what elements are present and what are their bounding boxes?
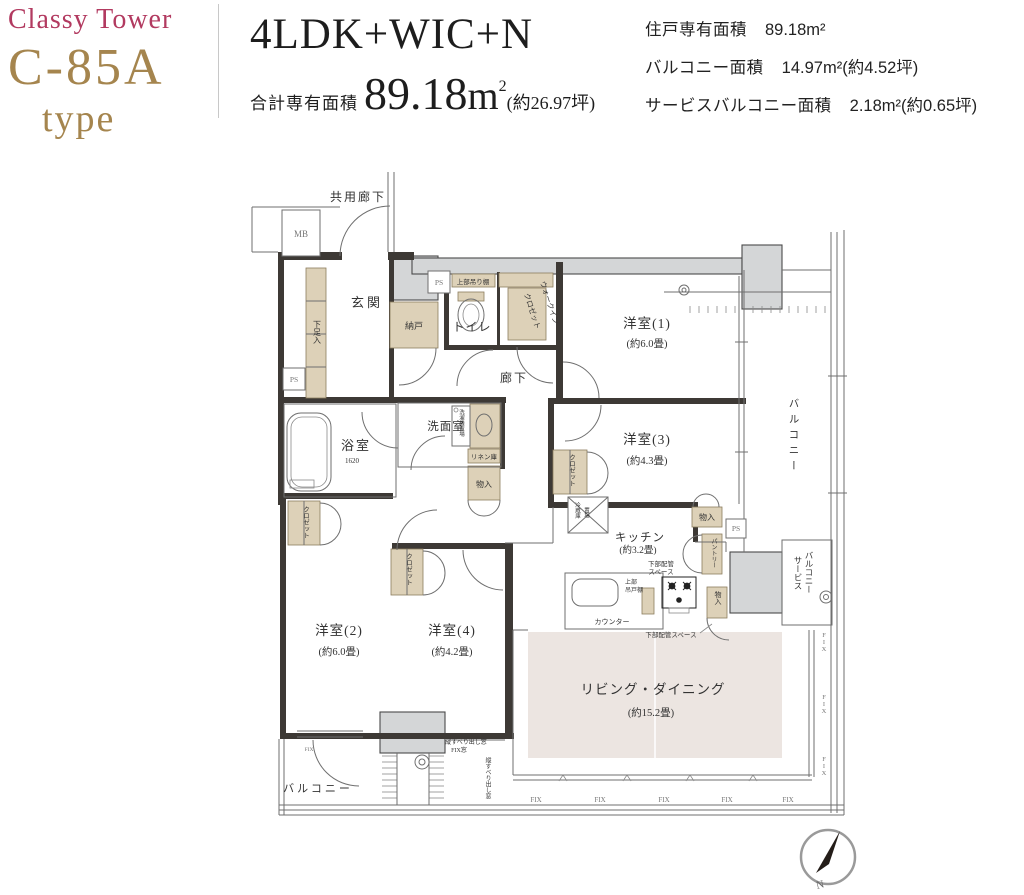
service-balcony-line2: バルコニー <box>804 551 814 594</box>
stove <box>662 577 696 608</box>
hanging-cabinet-line1: 上部 <box>625 578 637 586</box>
fix-label: FIX <box>658 796 669 804</box>
window-note-line1: 縦すべり出し窓 <box>445 738 487 746</box>
pipe-space-label-line1: 下部配管 <box>648 559 675 568</box>
pipe-space-label-line2: スペース <box>648 568 673 576</box>
service-balcony-line1: サービス <box>793 556 803 590</box>
toilet-label: トイレ <box>452 320 491 334</box>
room1-label: 洋室(1) <box>623 315 671 331</box>
entrance-label: 玄関 <box>351 295 383 310</box>
room4-label: 洋室(4) <box>428 622 476 638</box>
fridge-label-line1: 冷蔵庫 <box>574 501 581 520</box>
room2-label: 洋室(2) <box>315 622 363 638</box>
storage-label: 物入 <box>699 512 715 522</box>
bathtub <box>287 413 331 491</box>
hallway-label: 廊下 <box>500 370 528 385</box>
living-dining-size: (約15.2畳) <box>628 706 675 719</box>
room3-label: 洋室(3) <box>623 431 671 447</box>
storeroom-label: 納戸 <box>405 320 423 331</box>
window-note-line2: FIX窓 <box>451 746 467 754</box>
room2-size: (約6.0畳) <box>318 645 360 658</box>
ps-label: PS <box>435 278 443 287</box>
pipe-space-label: 下部配管スペース <box>645 630 696 639</box>
floorplan-drawing: 共用廊下 MB 玄関 下足入 PS PS PS 納戸 トイレ 上部吊り棚 ウォー… <box>0 0 1024 895</box>
storage-label: 物入 <box>714 590 722 605</box>
mb-label: MB <box>294 229 308 239</box>
fix-label: FIX <box>821 632 828 653</box>
compass: N <box>801 830 855 892</box>
fix-label: FIX <box>782 796 793 804</box>
balcony-south-label: バルコニー <box>283 782 353 795</box>
compass-north-label: N <box>815 878 826 892</box>
compass-needle-icon <box>816 831 840 873</box>
ps-label: PS <box>290 375 298 384</box>
washer-label: 洗濯機置場 <box>458 408 465 438</box>
kitchen-size: (約3.2畳) <box>619 544 656 556</box>
fix-label: FIX <box>530 796 541 804</box>
kitchen-sink <box>572 579 618 606</box>
storage-label: 物入 <box>476 479 492 489</box>
living-dining-label: リビング・ダイニング <box>581 682 726 697</box>
fix-label: FIX <box>721 796 732 804</box>
linen-label: リネン庫 <box>471 452 498 461</box>
counter-label: カウンター <box>595 617 630 626</box>
fix-label: FIX <box>821 694 828 715</box>
shoe-box-label: 下足入 <box>313 320 322 344</box>
ps-label: PS <box>732 524 740 533</box>
fix-label: FIX <box>821 756 828 777</box>
floorplan-page: Classy Tower C-85A type 4LDK+WIC+N 合計専有面… <box>0 0 1024 895</box>
room3-size: (約4.3畳) <box>626 454 668 467</box>
fix-label: FIX <box>594 796 605 804</box>
fridge-label-line2: 置場 <box>583 507 590 519</box>
room4-size: (約4.2畳) <box>431 645 473 658</box>
kitchen-label: キッチン <box>615 531 665 544</box>
pantry-label: パントリー <box>710 538 717 568</box>
toilet-shelf-label: 上部吊り棚 <box>457 277 490 286</box>
room1-size: (約6.0畳) <box>626 337 668 350</box>
common-corridor-label: 共用廊下 <box>330 189 386 204</box>
hanging-cabinet-line2: 吊戸棚 <box>625 586 643 594</box>
bath-size: 1620 <box>345 457 360 465</box>
window-note-vertical: 縦すべり出し窓 <box>484 756 491 799</box>
bath-label: 浴室 <box>341 438 371 453</box>
balcony-east-label: バルコニー <box>788 398 799 476</box>
fix-label: FIX <box>305 747 314 753</box>
